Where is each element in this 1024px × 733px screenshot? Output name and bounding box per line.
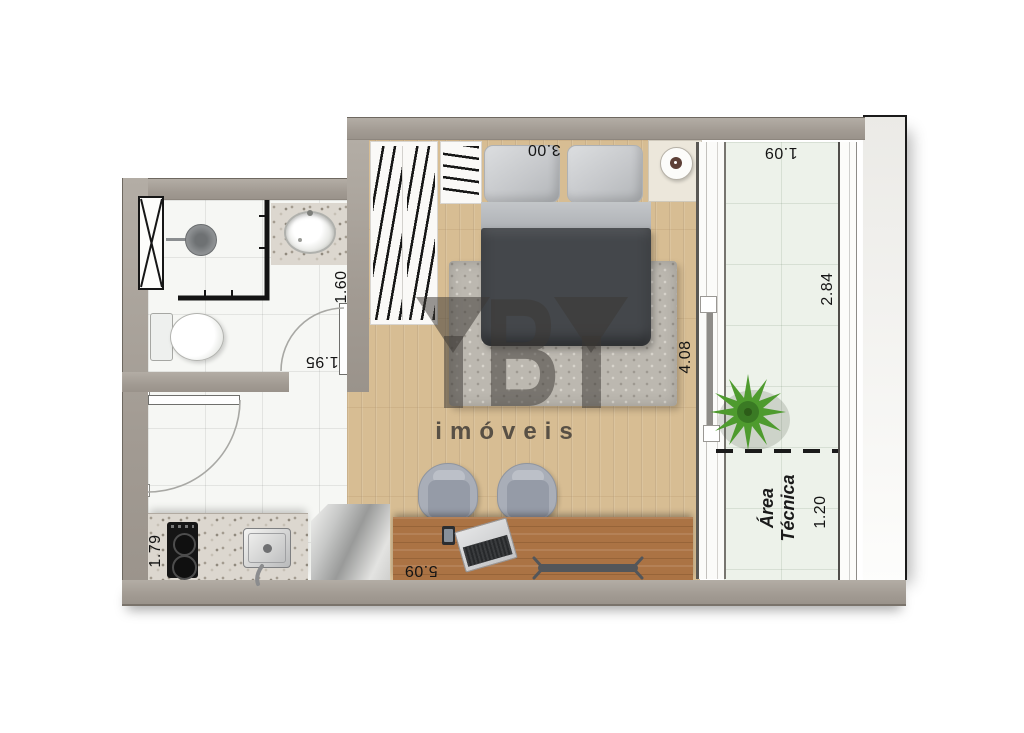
watermark-tagline: imóveis bbox=[435, 418, 580, 446]
refrigerator bbox=[311, 504, 390, 580]
dim-technical-depth: 1.20 bbox=[812, 495, 830, 528]
sink-drain bbox=[263, 544, 272, 553]
wardrobe bbox=[370, 141, 438, 325]
chair-left bbox=[418, 463, 478, 521]
lamp bbox=[660, 147, 693, 180]
wardrobe-hangers bbox=[443, 146, 479, 199]
wardrobe-hangers bbox=[373, 146, 403, 320]
cooktop bbox=[167, 522, 198, 578]
nightstand bbox=[648, 140, 702, 202]
burner bbox=[172, 555, 197, 580]
sliding-door-handle bbox=[700, 296, 717, 313]
dim-bedroom-width: 3.00 bbox=[527, 140, 560, 158]
technical-area-label: Área Técnica bbox=[757, 474, 799, 541]
kitchen-sink bbox=[243, 528, 291, 568]
technical-area-line2: Técnica bbox=[778, 474, 799, 541]
wall-bottom bbox=[122, 580, 906, 606]
smartphone bbox=[442, 526, 455, 545]
floor-plan: B imóveis 3.00 1.09 2.84 4.08 1.60 1.95 … bbox=[0, 0, 1024, 733]
toilet-bowl bbox=[170, 313, 224, 361]
ventilation-window bbox=[138, 196, 164, 290]
facade-outline bbox=[863, 115, 907, 580]
cooktop-knobs bbox=[171, 525, 194, 528]
chair-cushion bbox=[428, 480, 470, 518]
wardrobe-small bbox=[440, 141, 482, 204]
dim-balcony-length: 2.84 bbox=[819, 272, 837, 305]
burner bbox=[173, 533, 196, 556]
dim-bathroom-width: 1.95 bbox=[305, 352, 338, 370]
entry-door-leaf bbox=[148, 395, 240, 405]
chair-cushion bbox=[507, 480, 549, 518]
wall-bathroom-south bbox=[122, 372, 289, 392]
dim-bathroom-depth: 1.60 bbox=[333, 270, 351, 303]
dim-balcony-width: 1.09 bbox=[764, 143, 797, 161]
lamp-shade bbox=[670, 157, 682, 169]
desk bbox=[393, 517, 693, 580]
smartphone-screen bbox=[444, 529, 453, 542]
sliding-glass-door bbox=[696, 142, 726, 579]
bed-duvet bbox=[481, 228, 651, 346]
dim-kitchen-depth: 1.79 bbox=[147, 534, 165, 567]
wall-bathroom-east bbox=[347, 140, 369, 392]
sliding-door-panel-edge bbox=[707, 312, 713, 426]
chair-right bbox=[497, 463, 557, 521]
sliding-door-handle bbox=[703, 425, 720, 442]
shower-head bbox=[185, 224, 217, 256]
dim-studio-length: 5.09 bbox=[404, 561, 437, 579]
balcony-railing bbox=[838, 142, 857, 580]
bed-pillow-right bbox=[567, 145, 643, 203]
bathroom-sink bbox=[284, 211, 336, 254]
technical-area-line1: Área bbox=[757, 474, 778, 541]
wardrobe-hangers bbox=[407, 146, 436, 320]
wall-top bbox=[347, 117, 865, 140]
dim-bedroom-length: 4.08 bbox=[677, 340, 695, 373]
lamp-bulb bbox=[674, 161, 677, 164]
